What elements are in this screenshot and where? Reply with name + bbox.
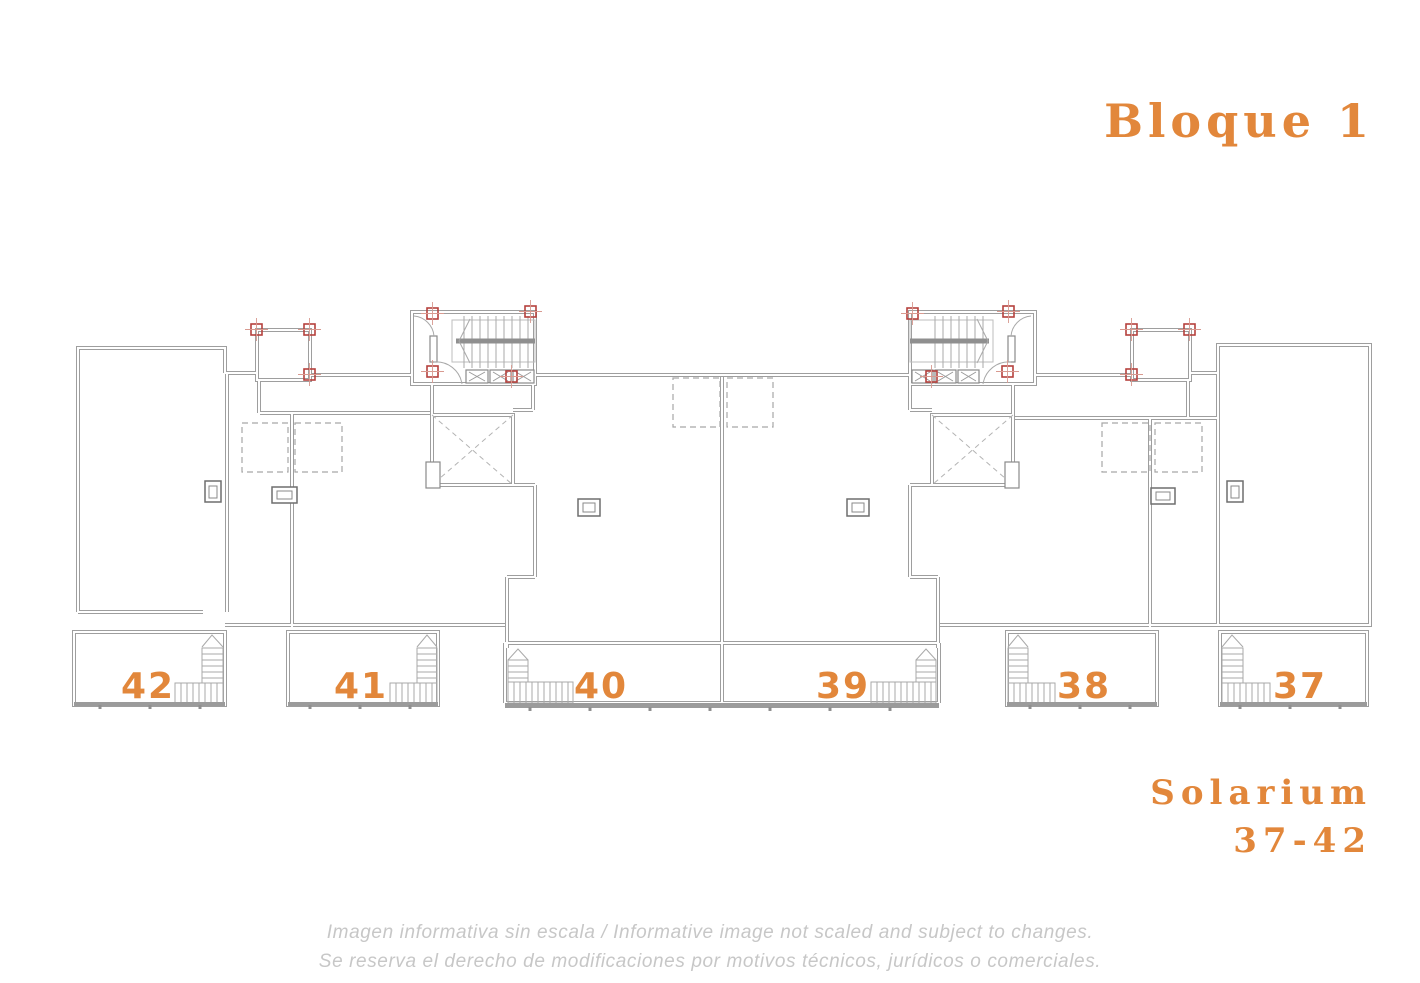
- solarium-line2: 37-42: [1150, 818, 1372, 866]
- unit-39-label: 39: [816, 666, 870, 707]
- unit-42-label: 42: [121, 666, 175, 707]
- terrace-bases: [74, 702, 1367, 711]
- unit-40-label: 40: [574, 666, 628, 707]
- disclaimer-line1: Imagen informativa sin escala / Informat…: [0, 918, 1420, 947]
- elevator-right: [932, 415, 1019, 488]
- solarium-label: Solarium 37-42: [1150, 770, 1372, 865]
- unit-37-label: 37: [1273, 666, 1327, 707]
- unit-38-label: 38: [1057, 666, 1111, 707]
- disclaimer-line2: Se reserva el derecho de modificaciones …: [0, 947, 1420, 976]
- elevator-left: [426, 415, 513, 488]
- solarium-line1: Solarium: [1150, 770, 1372, 818]
- plan-walls: [74, 312, 1370, 708]
- disclaimer: Imagen informativa sin escala / Informat…: [0, 918, 1420, 977]
- unit-41-label: 41: [334, 666, 388, 707]
- page: Bloque 1: [0, 0, 1420, 983]
